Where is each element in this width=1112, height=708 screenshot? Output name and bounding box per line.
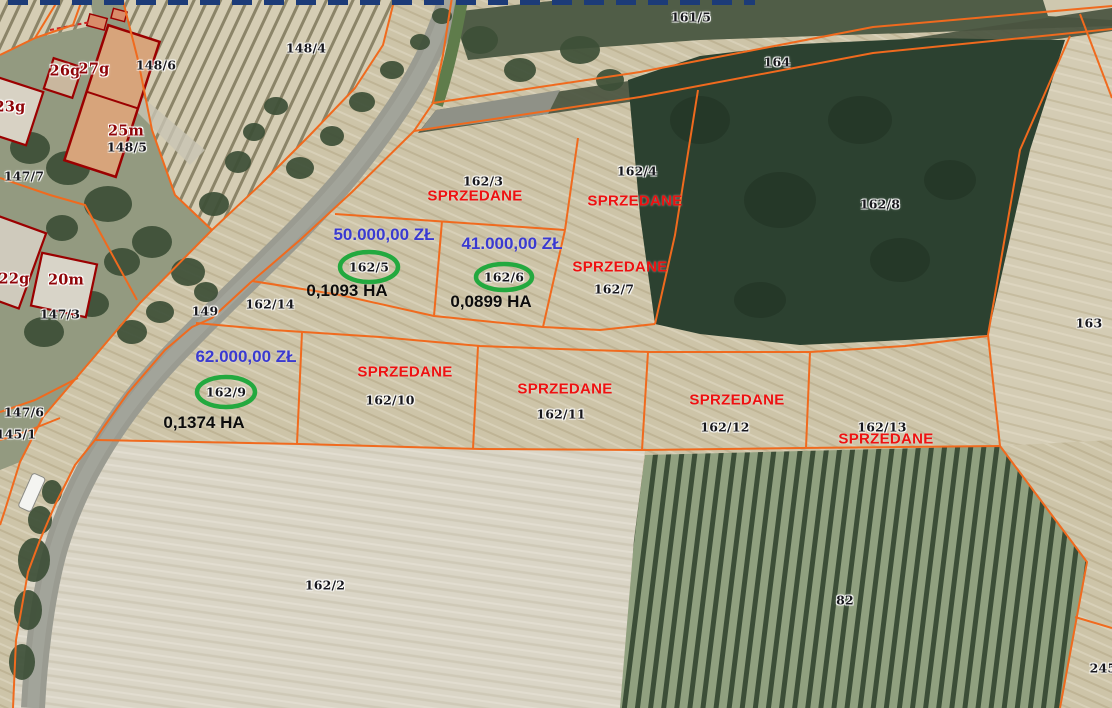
price-label-162-5: 50.000,00 ZŁ [333, 225, 434, 245]
parcel-label-148-6: 148/6 [136, 58, 176, 73]
sold-label-162-3: SPRZEDANE [427, 188, 522, 205]
sold-label-162-12: SPRZEDANE [689, 392, 784, 409]
building-label-26g: 26g [50, 63, 81, 80]
parcel-label-162-11: 162/11 [536, 407, 585, 422]
parcel-label-164: 164 [764, 55, 791, 70]
parcel-label-163: 163 [1076, 316, 1103, 331]
sold-label-162-7: SPRZEDANE [572, 259, 667, 276]
parcel-label-82: 82 [836, 593, 854, 608]
parcel-label-161-5: 161/5 [671, 10, 711, 25]
parcel-label-147-7: 147/7 [4, 169, 44, 184]
parcel-label-162-10: 162/10 [365, 393, 414, 408]
price-label-162-9: 62.000,00 ZŁ [195, 347, 296, 367]
plot-number-162-9: 162/9 [206, 385, 246, 400]
parcel-label-162-8: 162/8 [860, 197, 900, 212]
aerial-photo-canvas [0, 0, 1112, 708]
parcel-label-145-1: 145/1 [0, 427, 36, 442]
parcel-label-162-14: 162/14 [245, 297, 294, 312]
parcel-label-245: 245 [1090, 661, 1112, 676]
parcel-label-162-7: 162/7 [594, 282, 634, 297]
building-label-27g: 27g [79, 61, 110, 78]
parcel-label-149: 149 [192, 304, 219, 319]
parcel-label-148-5: 148/5 [107, 140, 147, 155]
building-label-22g: 22g [0, 271, 29, 288]
plot-number-162-5: 162/5 [349, 260, 389, 275]
parcel-label-162-4: 162/4 [617, 164, 657, 179]
sold-label-162-13: SPRZEDANE [838, 431, 933, 448]
plot-number-162-6: 162/6 [484, 270, 524, 285]
parcel-label-162-3: 162/3 [463, 174, 503, 189]
area-label-162-6: 0,0899 HA [450, 292, 531, 312]
sold-label-162-4: SPRZEDANE [587, 193, 682, 210]
parcel-label-162-2: 162/2 [305, 578, 345, 593]
parcel-label-147-3: 147/3 [40, 307, 80, 322]
aerial-parcel-map: 148/4 148/6 148/5 147/7 147/3 147/6 145/… [0, 0, 1112, 708]
building-label-25m: 25m [108, 123, 144, 140]
cropped-title-ticks [8, 0, 755, 5]
area-label-162-9: 0,1374 HA [163, 413, 244, 433]
area-label-162-5: 0,1093 HA [306, 281, 387, 301]
field-162-2 [13, 440, 645, 708]
parcel-label-162-12: 162/12 [700, 420, 749, 435]
price-label-162-6: 41.000,00 ZŁ [461, 234, 562, 254]
building-label-20m: 20m [48, 272, 84, 289]
sold-label-162-11: SPRZEDANE [517, 381, 612, 398]
sold-label-162-10: SPRZEDANE [357, 364, 452, 381]
parcel-label-148-4: 148/4 [286, 41, 326, 56]
orchard-82 [620, 446, 1087, 708]
building-label-23g: 23g [0, 99, 25, 116]
parcel-label-147-6: 147/6 [4, 405, 44, 420]
